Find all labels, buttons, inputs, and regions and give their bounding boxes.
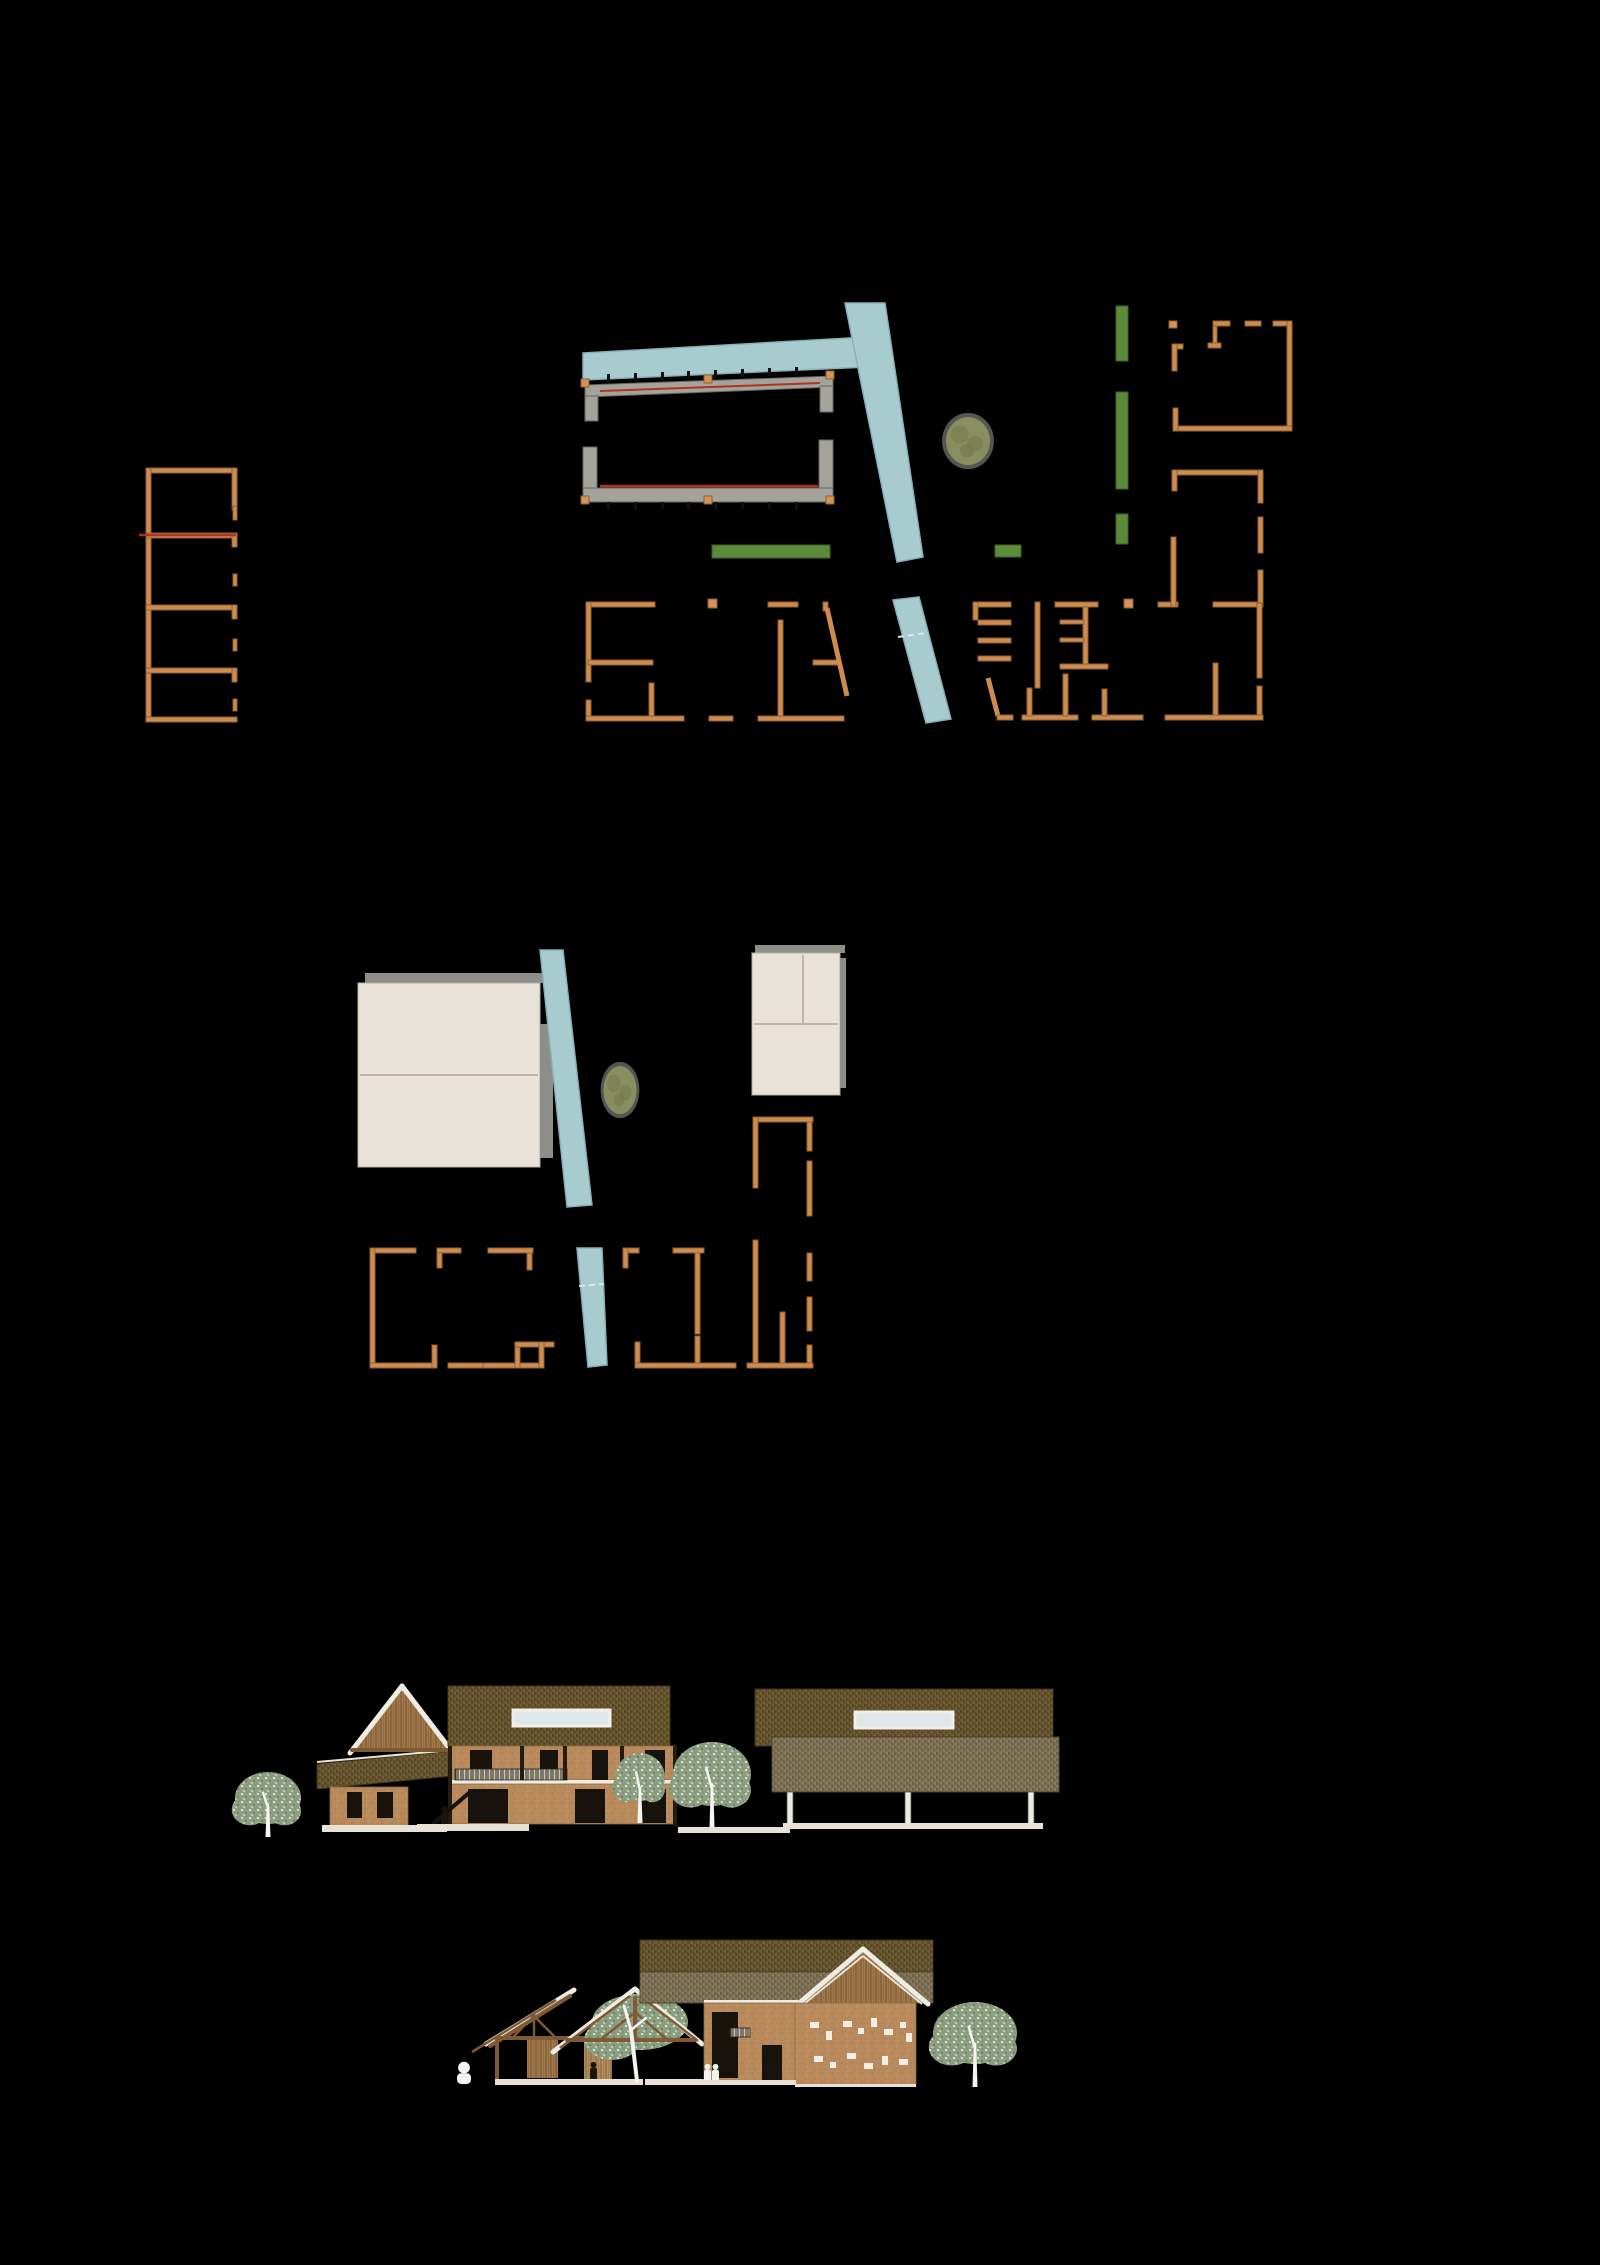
rect [1173, 426, 1292, 431]
rect [588, 602, 655, 607]
slat-panel [527, 2040, 558, 2078]
rect [370, 1248, 375, 1368]
rect [695, 1253, 700, 1334]
rect [708, 599, 717, 608]
black-background [0, 0, 1600, 2265]
rect [847, 2053, 856, 2059]
site-plans-and-elevations-drawing [0, 0, 1600, 2265]
rect [783, 1823, 1043, 1829]
rect [714, 502, 717, 509]
lower-plan-tree [601, 1062, 640, 1118]
rect [1172, 470, 1177, 491]
rect [1173, 408, 1178, 431]
rect [488, 1248, 533, 1253]
rect [778, 620, 783, 721]
rect [768, 502, 771, 509]
rect [1258, 570, 1263, 603]
person [590, 2062, 597, 2080]
rect [673, 1248, 704, 1253]
rect [758, 716, 844, 721]
roof-edge-band [840, 958, 846, 1088]
rect [1171, 537, 1176, 607]
rect [858, 2028, 864, 2034]
person [768, 2058, 776, 2080]
rect [146, 717, 237, 722]
rect [741, 369, 744, 377]
column [787, 1792, 793, 1824]
rect [864, 2063, 873, 2069]
rect [539, 1342, 544, 1368]
rect [747, 1363, 813, 1368]
column [1028, 1792, 1034, 1824]
rect [768, 602, 798, 607]
rect [813, 660, 839, 665]
rect [1083, 607, 1088, 664]
planter [1116, 514, 1128, 544]
rect [1213, 321, 1230, 326]
rect [704, 496, 712, 504]
rect [1169, 321, 1177, 328]
rect [563, 1746, 567, 1780]
upper-plan-tree [942, 413, 994, 469]
rect [795, 367, 798, 375]
rect [1124, 599, 1133, 608]
rect [1172, 344, 1177, 371]
rect [997, 715, 1013, 720]
plan-tree [601, 1062, 640, 1118]
rect [495, 2079, 643, 2085]
roof-ridge-band [365, 973, 545, 983]
pavilion-roof-lower [772, 1737, 1059, 1792]
rect [1258, 470, 1263, 503]
rect [635, 1363, 736, 1368]
rect [1063, 674, 1068, 716]
skylight [513, 1710, 610, 1726]
rect [232, 668, 237, 682]
rect [753, 1117, 758, 1188]
rect [233, 574, 237, 586]
rect [146, 605, 237, 610]
rect [1102, 689, 1107, 716]
rect [1257, 602, 1262, 678]
rect [232, 605, 237, 619]
rect [592, 1750, 608, 1780]
rect [448, 1363, 484, 1368]
rect [370, 1248, 416, 1253]
column [905, 1792, 911, 1824]
rect [978, 602, 1011, 607]
rect [146, 468, 237, 473]
rect [1208, 343, 1221, 348]
rect [370, 1363, 434, 1368]
rect [753, 1240, 758, 1367]
rect [978, 656, 1011, 661]
rect [586, 602, 591, 682]
rect [656, 2080, 796, 2085]
rect [1245, 321, 1261, 326]
rect [437, 1248, 461, 1253]
rect [1035, 602, 1040, 688]
rect [978, 620, 1011, 625]
rect [768, 368, 771, 376]
rect [623, 1248, 628, 1268]
rect [146, 668, 237, 673]
rect [1258, 517, 1263, 553]
rect [695, 1336, 700, 1367]
rect [1213, 602, 1263, 607]
north-wall-right-return [820, 386, 833, 412]
rect [634, 373, 637, 381]
rect [607, 374, 610, 382]
person [441, 1806, 448, 1826]
rect [1027, 688, 1032, 716]
rect [468, 1789, 508, 1823]
rect [899, 2059, 908, 2065]
architectural-poster [0, 0, 1600, 2265]
rect [709, 716, 733, 721]
rect [843, 2021, 852, 2027]
rect [1172, 470, 1263, 475]
rect [741, 502, 744, 509]
rect [795, 502, 798, 509]
skylight [855, 1712, 953, 1728]
rect [581, 379, 589, 387]
rect [814, 2056, 823, 2062]
rect [1060, 638, 1084, 642]
rect [826, 496, 834, 504]
perforated-wall [795, 2003, 916, 2085]
rect [871, 2018, 877, 2027]
rect [661, 372, 664, 380]
rect [1287, 321, 1292, 431]
rect [1055, 602, 1098, 607]
rect [448, 1746, 452, 1826]
rect [649, 683, 654, 721]
rect [1060, 664, 1108, 669]
rect [232, 468, 237, 510]
rect [634, 502, 637, 509]
rect [826, 2031, 832, 2040]
rect [826, 371, 834, 379]
rect [1165, 715, 1263, 720]
rect [1213, 663, 1218, 720]
rect [807, 1161, 812, 1216]
rect [900, 2022, 906, 2028]
rect [1092, 715, 1143, 720]
rect [704, 2000, 798, 2003]
rect [1060, 620, 1084, 624]
rect [575, 1789, 605, 1823]
rect [607, 502, 610, 509]
rect [233, 506, 237, 520]
balcony-rail [730, 2028, 750, 2037]
planter [1116, 392, 1128, 489]
rect [581, 496, 589, 504]
rect [810, 2022, 819, 2028]
rect [807, 1253, 812, 1281]
balcony-rail [455, 1769, 567, 1780]
plan-tree [942, 413, 994, 469]
rect [906, 2033, 912, 2042]
rect [432, 1345, 437, 1368]
planter [712, 545, 830, 558]
rect [661, 502, 664, 509]
rect [973, 602, 978, 620]
rect [882, 2056, 888, 2065]
planter [995, 545, 1021, 557]
rect [527, 1253, 532, 1270]
rect [978, 638, 1011, 643]
rect [483, 1363, 544, 1368]
rect [417, 1824, 529, 1831]
rect [687, 371, 690, 379]
rect [377, 1792, 393, 1818]
rect [586, 716, 684, 721]
rect [795, 2084, 916, 2087]
rect [714, 370, 717, 378]
adobe-wall [330, 1787, 408, 1829]
rect [233, 699, 237, 711]
rect [807, 1122, 812, 1151]
rect [780, 1312, 785, 1367]
rect [884, 2029, 893, 2035]
rect [704, 375, 712, 383]
rect [347, 1792, 362, 1818]
planter [1116, 306, 1128, 361]
rect [233, 639, 237, 651]
rect [520, 1746, 524, 1780]
rect [687, 502, 690, 509]
roof-ridge-band [755, 945, 845, 953]
rect [515, 1342, 554, 1347]
rect [753, 1117, 813, 1122]
rect [146, 468, 151, 722]
rect [588, 660, 653, 665]
north-wall-left-return [585, 396, 598, 421]
rect [678, 1827, 790, 1833]
rect [437, 1253, 442, 1268]
rect [807, 1297, 812, 1331]
rect [830, 2062, 836, 2068]
